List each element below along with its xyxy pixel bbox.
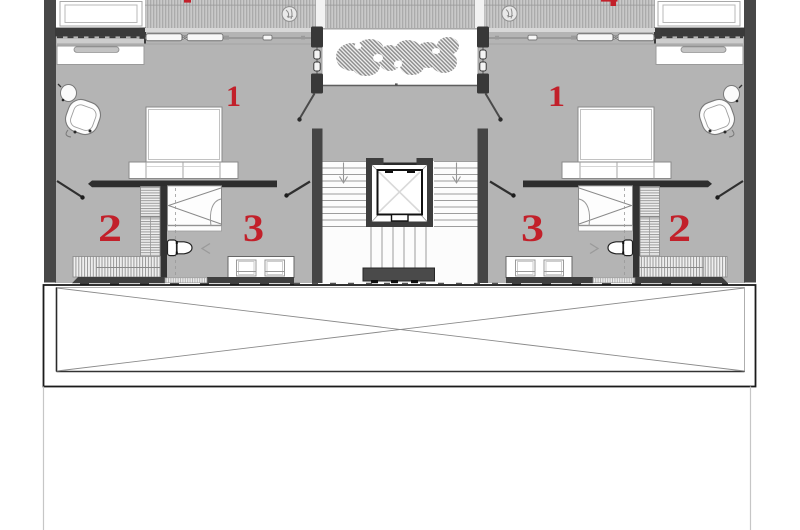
svg-text:2: 2 (668, 207, 691, 250)
svg-text:1: 1 (548, 80, 565, 113)
svg-text:3: 3 (521, 207, 544, 250)
svg-text:2: 2 (98, 207, 122, 250)
svg-text:1: 1 (226, 80, 241, 113)
svg-text:3: 3 (243, 207, 264, 250)
